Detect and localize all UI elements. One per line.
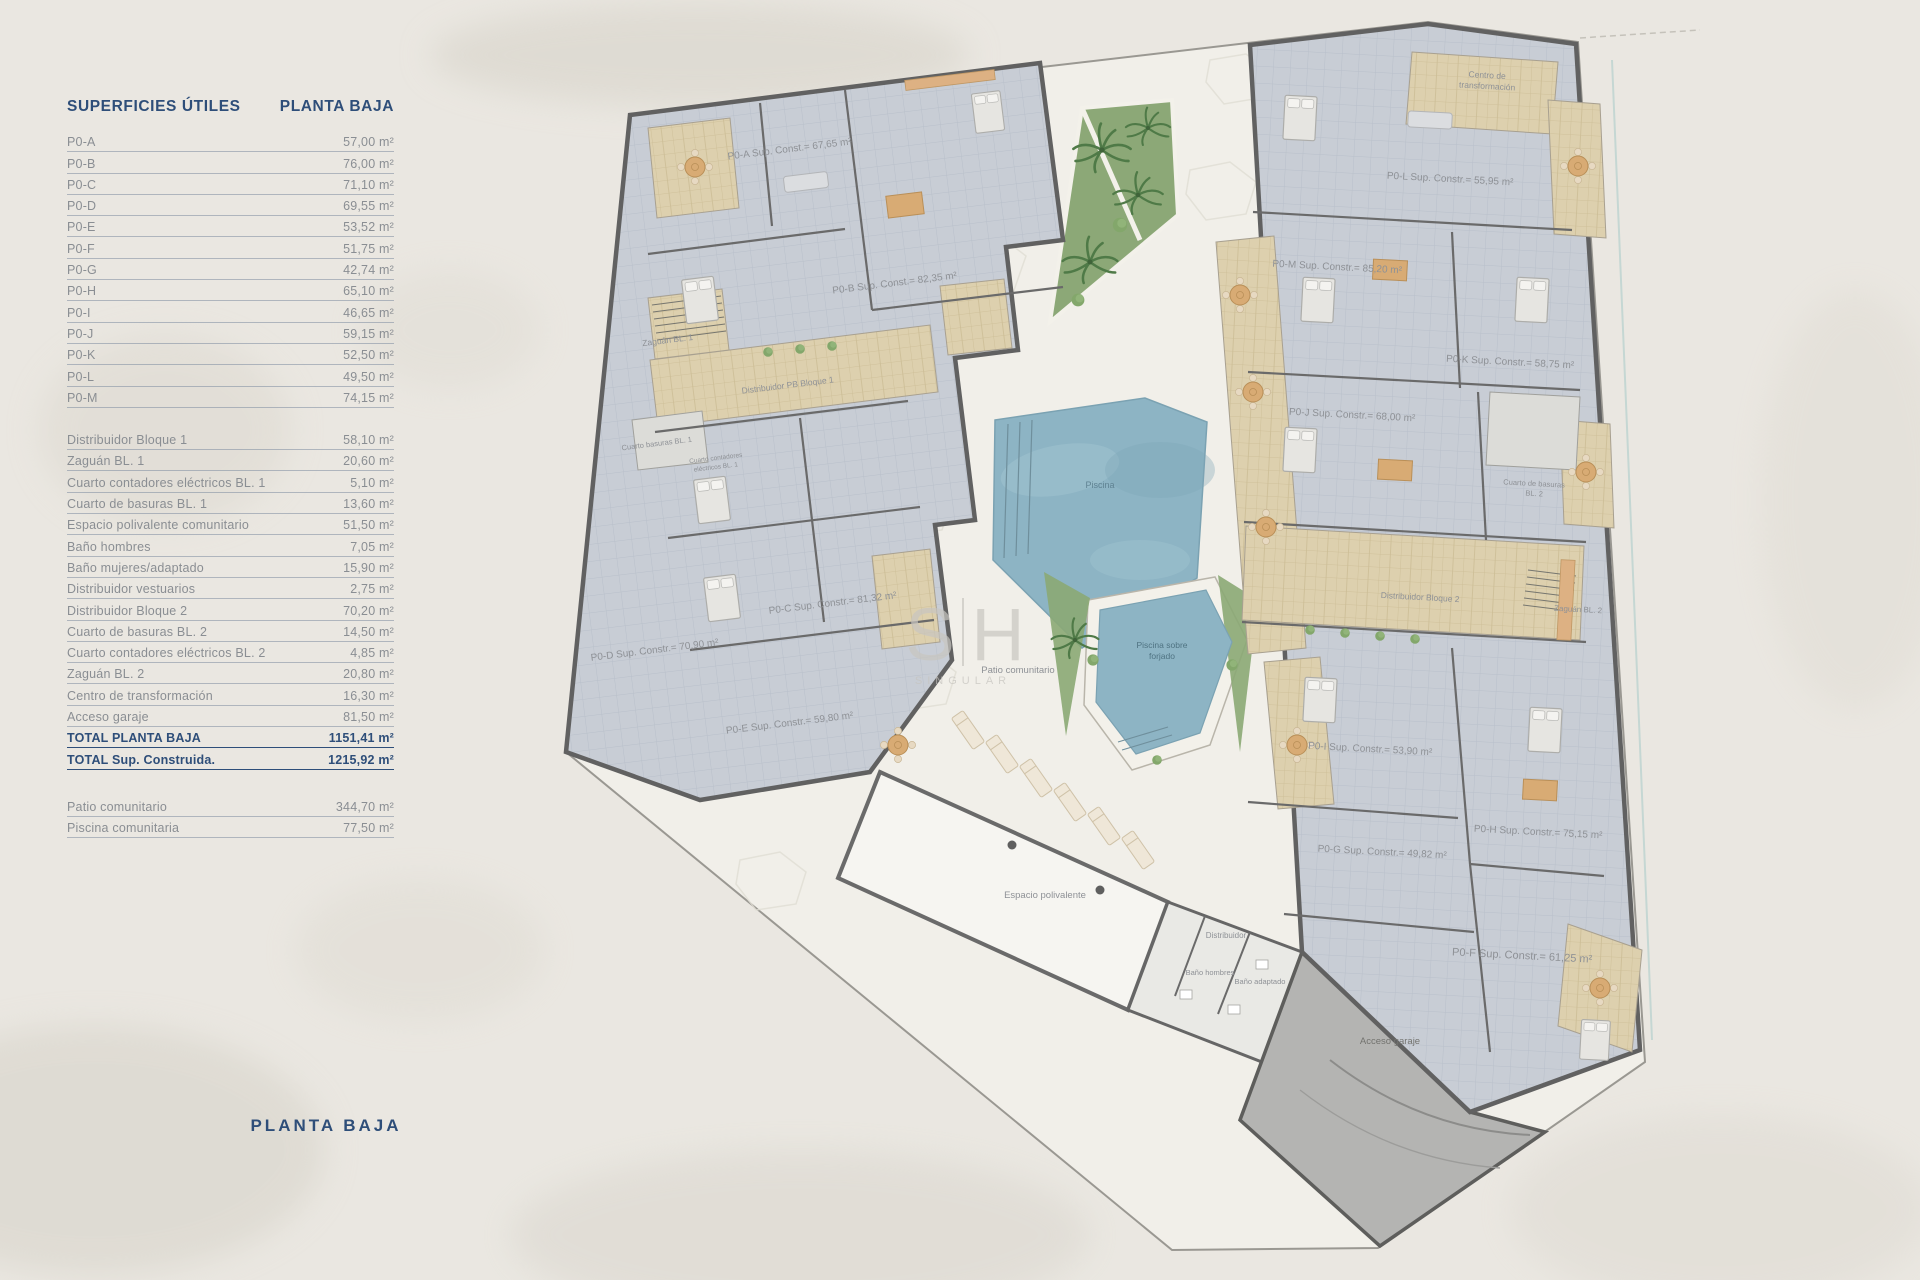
surface-row-value: 46,65 m² bbox=[343, 306, 394, 320]
room-label-basuras2: BL. 2 bbox=[1525, 489, 1543, 499]
surface-row-label: Zaguán BL. 1 bbox=[67, 454, 144, 468]
bush-icon bbox=[1305, 625, 1315, 635]
area-label-patio: Patio comunitario bbox=[981, 665, 1054, 676]
surface-row-label: Piscina comunitaria bbox=[67, 821, 179, 835]
surface-row-value: 76,00 m² bbox=[343, 157, 394, 171]
surface-row: P0-K52,50 m² bbox=[67, 344, 394, 365]
bed-icon bbox=[1301, 277, 1335, 323]
surface-row-label: Distribuidor Bloque 2 bbox=[67, 604, 187, 618]
area-label-acceso-garaje: Acceso garaje bbox=[1360, 1036, 1420, 1047]
bed-icon bbox=[1283, 95, 1317, 141]
surface-row-value: 53,52 m² bbox=[343, 220, 394, 234]
fixture bbox=[1228, 1005, 1240, 1014]
surface-row: Baño mujeres/adaptado15,90 m² bbox=[67, 557, 394, 578]
surface-row-value: 49,50 m² bbox=[343, 370, 394, 384]
surface-row: P0-E53,52 m² bbox=[67, 216, 394, 237]
bed-icon bbox=[1515, 277, 1549, 323]
surface-row-value: 77,50 m² bbox=[343, 821, 394, 835]
surface-row-value: 57,00 m² bbox=[343, 135, 394, 149]
surface-row-label: Baño mujeres/adaptado bbox=[67, 561, 204, 575]
bed-icon bbox=[971, 91, 1004, 134]
surface-total-row: TOTAL PLANTA BAJA1151,41 m² bbox=[67, 727, 394, 748]
surface-row-value: 58,10 m² bbox=[343, 433, 394, 447]
column bbox=[1008, 841, 1017, 850]
surface-row-label: P0-H bbox=[67, 284, 96, 298]
surface-row: P0-I46,65 m² bbox=[67, 301, 394, 322]
surface-row-value: 14,50 m² bbox=[343, 625, 394, 639]
area-label-piscina-forjado: Piscina sobre bbox=[1136, 640, 1187, 650]
bush-icon bbox=[1340, 628, 1350, 638]
room-label-bano-adaptado: Baño adaptado bbox=[1235, 977, 1286, 986]
dining-table-icon bbox=[1377, 459, 1412, 481]
bush-icon bbox=[763, 347, 773, 357]
sofa-icon bbox=[1408, 111, 1453, 129]
surface-row-label: P0-L bbox=[67, 370, 94, 384]
surface-row-value: 13,60 m² bbox=[343, 497, 394, 511]
surface-row-label: Cuarto contadores eléctricos BL. 2 bbox=[67, 646, 266, 660]
table-header: SUPERFICIES ÚTILES PLANTA BAJA bbox=[67, 98, 394, 116]
surface-row: Zaguán BL. 220,80 m² bbox=[67, 663, 394, 684]
bed-icon bbox=[1303, 677, 1337, 723]
area-label-espacio: Espacio polivalente bbox=[1004, 890, 1086, 901]
bush-icon bbox=[1410, 634, 1420, 644]
surface-row: Cuarto contadores eléctricos BL. 24,85 m… bbox=[67, 642, 394, 663]
dining-table-icon bbox=[1522, 779, 1557, 801]
surface-row: P0-A57,00 m² bbox=[67, 131, 394, 152]
surface-row-label: P0-E bbox=[67, 220, 96, 234]
floorplan-sheet: S H SINGULAR P0-A Sup. Const.= 67,65 m² … bbox=[0, 0, 1920, 1280]
bed-icon bbox=[693, 476, 730, 524]
table-title: SUPERFICIES ÚTILES bbox=[67, 98, 241, 116]
bush-icon bbox=[1113, 218, 1127, 232]
surface-row-value: 52,50 m² bbox=[343, 348, 394, 362]
surface-row: P0-G42,74 m² bbox=[67, 259, 394, 280]
surface-row-label: Espacio polivalente comunitario bbox=[67, 518, 249, 532]
surfaces-table: SUPERFICIES ÚTILES PLANTA BAJA P0-A57,00… bbox=[67, 98, 394, 838]
bed-icon bbox=[681, 276, 718, 324]
surface-row-label: P0-M bbox=[67, 391, 98, 405]
surface-row-value: 20,60 m² bbox=[343, 454, 394, 468]
surfaces-group-apartments: P0-A57,00 m²P0-B76,00 m²P0-C71,10 m²P0-D… bbox=[67, 131, 394, 408]
surface-row-label: Centro de transformación bbox=[67, 689, 213, 703]
bush-icon bbox=[1375, 631, 1385, 641]
surface-row-value: 7,05 m² bbox=[350, 540, 394, 554]
surface-row-label: P0-J bbox=[67, 327, 94, 341]
surface-row-value: 69,55 m² bbox=[343, 199, 394, 213]
surface-row: Distribuidor Bloque 270,20 m² bbox=[67, 599, 394, 620]
surface-row: Cuarto contadores eléctricos BL. 15,10 m… bbox=[67, 471, 394, 492]
surface-row-label: Acceso garaje bbox=[67, 710, 149, 724]
surface-row-value: 51,50 m² bbox=[343, 518, 394, 532]
surface-row: P0-L49,50 m² bbox=[67, 365, 394, 386]
bush-icon bbox=[1087, 654, 1098, 665]
surface-row-label: P0-B bbox=[67, 157, 96, 171]
room-label-centro: Centro de bbox=[1468, 69, 1506, 81]
surface-row-label: Distribuidor vestuarios bbox=[67, 582, 195, 596]
dining-table-icon bbox=[886, 192, 924, 218]
surface-row-label: P0-K bbox=[67, 348, 96, 362]
surface-row-value: 59,15 m² bbox=[343, 327, 394, 341]
bed-icon bbox=[1283, 427, 1317, 473]
surface-row-label: P0-I bbox=[67, 306, 91, 320]
surfaces-group-outdoor: Patio comunitario344,70 m²Piscina comuni… bbox=[67, 796, 394, 839]
bed-icon bbox=[1580, 1019, 1611, 1060]
surface-row-value: 1215,92 m² bbox=[328, 753, 394, 767]
surface-row: Cuarto de basuras BL. 113,60 m² bbox=[67, 493, 394, 514]
surface-row-value: 74,15 m² bbox=[343, 391, 394, 405]
surface-row: P0-H65,10 m² bbox=[67, 280, 394, 301]
room-label-bano-hombres: Baño hombres bbox=[1186, 968, 1235, 977]
surface-row: Zaguán BL. 120,60 m² bbox=[67, 450, 394, 471]
surface-row-label: Baño hombres bbox=[67, 540, 151, 554]
surface-row-label: P0-F bbox=[67, 242, 95, 256]
surface-row-label: P0-G bbox=[67, 263, 97, 277]
fixture bbox=[1256, 960, 1268, 969]
surface-row-value: 51,75 m² bbox=[343, 242, 394, 256]
fixture bbox=[1180, 990, 1192, 999]
surface-row-label: Cuarto contadores eléctricos BL. 1 bbox=[67, 476, 266, 490]
surface-row: Piscina comunitaria77,50 m² bbox=[67, 817, 394, 838]
bush-icon bbox=[1152, 755, 1162, 765]
surface-row-value: 20,80 m² bbox=[343, 667, 394, 681]
surface-row-label: Cuarto de basuras BL. 1 bbox=[67, 497, 207, 511]
surface-row-label: P0-C bbox=[67, 178, 96, 192]
sheet-title: PLANTA BAJA bbox=[216, 1116, 436, 1136]
surface-row-label: Distribuidor Bloque 1 bbox=[67, 433, 187, 447]
surface-row: Centro de transformación16,30 m² bbox=[67, 684, 394, 705]
surface-row-value: 71,10 m² bbox=[343, 178, 394, 192]
surface-row-value: 65,10 m² bbox=[343, 284, 394, 298]
bed-icon bbox=[703, 574, 740, 622]
surface-row: Cuarto de basuras BL. 214,50 m² bbox=[67, 621, 394, 642]
bush-icon bbox=[827, 341, 837, 351]
surface-row-value: 15,90 m² bbox=[343, 561, 394, 575]
surface-row: Distribuidor vestuarios2,75 m² bbox=[67, 578, 394, 599]
surface-row-value: 5,10 m² bbox=[350, 476, 394, 490]
surface-row-value: 42,74 m² bbox=[343, 263, 394, 277]
surface-row: Distribuidor Bloque 158,10 m² bbox=[67, 429, 394, 450]
surface-row-label: TOTAL PLANTA BAJA bbox=[67, 731, 201, 745]
room-label-distribuidor-aseos: Distribuidor bbox=[1206, 931, 1247, 940]
surface-row: Baño hombres7,05 m² bbox=[67, 535, 394, 556]
surface-row-value: 81,50 m² bbox=[343, 710, 394, 724]
watermark-subtext: SINGULAR bbox=[915, 675, 1011, 687]
bush-icon bbox=[1072, 294, 1085, 307]
surface-row-label: P0-A bbox=[67, 135, 96, 149]
surface-row-label: Zaguán BL. 2 bbox=[67, 667, 144, 681]
area-label-piscina: Piscina bbox=[1085, 480, 1114, 490]
surface-row: Espacio polivalente comunitario51,50 m² bbox=[67, 514, 394, 535]
surface-row: P0-C71,10 m² bbox=[67, 174, 394, 195]
surface-row-value: 344,70 m² bbox=[336, 800, 394, 814]
surface-row-value: 16,30 m² bbox=[343, 689, 394, 703]
surface-row-value: 2,75 m² bbox=[350, 582, 394, 596]
surface-row: P0-F51,75 m² bbox=[67, 237, 394, 258]
surface-row-label: Cuarto de basuras BL. 2 bbox=[67, 625, 207, 639]
table-subtitle: PLANTA BAJA bbox=[280, 98, 394, 116]
bed-icon bbox=[1528, 707, 1562, 753]
surface-row-value: 4,85 m² bbox=[350, 646, 394, 660]
surface-row-label: TOTAL Sup. Construida. bbox=[67, 753, 215, 767]
watermark-letter: H bbox=[971, 593, 1024, 676]
surface-row-label: Patio comunitario bbox=[67, 800, 167, 814]
column bbox=[1096, 886, 1105, 895]
surface-row-label: P0-D bbox=[67, 199, 96, 213]
surface-row: P0-D69,55 m² bbox=[67, 195, 394, 216]
surface-total-row: TOTAL Sup. Construida.1215,92 m² bbox=[67, 748, 394, 769]
surface-row: Acceso garaje81,50 m² bbox=[67, 706, 394, 727]
surface-row: P0-M74,15 m² bbox=[67, 387, 394, 408]
surface-row-value: 1151,41 m² bbox=[329, 731, 394, 745]
bush-icon bbox=[1226, 659, 1237, 670]
surface-row: P0-B76,00 m² bbox=[67, 152, 394, 173]
watermark-letter: S bbox=[905, 593, 954, 676]
area-label-piscina-forjado: forjado bbox=[1149, 651, 1175, 661]
surface-row: Patio comunitario344,70 m² bbox=[67, 796, 394, 817]
surface-row-value: 70,20 m² bbox=[343, 604, 394, 618]
surface-row: P0-J59,15 m² bbox=[67, 323, 394, 344]
surfaces-group-common: Distribuidor Bloque 158,10 m²Zaguán BL. … bbox=[67, 429, 394, 770]
bush-icon bbox=[795, 344, 805, 354]
